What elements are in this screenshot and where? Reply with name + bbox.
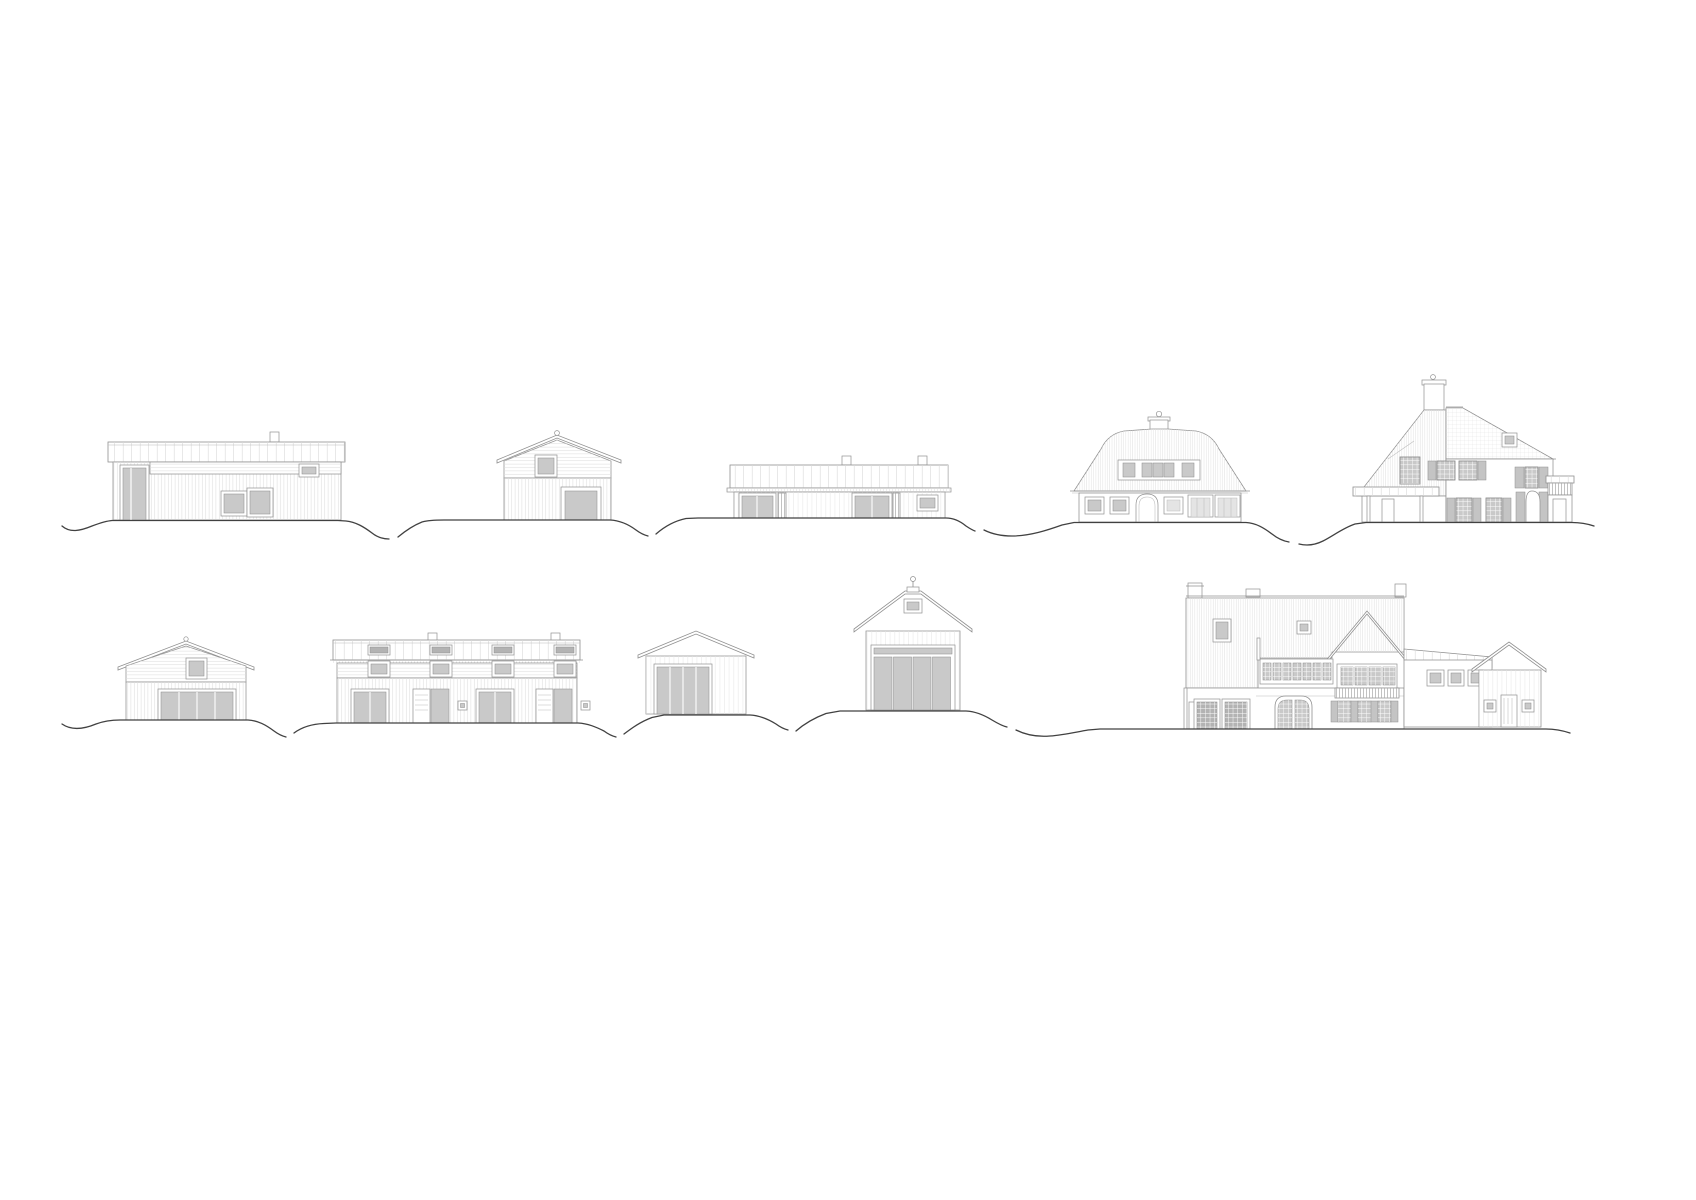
elevation-large-country-house [1184,583,1546,729]
glazed-opening [739,493,776,518]
unit-entrance [536,689,572,723]
chimney-ball [1156,411,1161,416]
shuttered-window-band [1331,701,1398,722]
roof-vent [842,456,851,465]
elevation-mansard-roof-house [1070,411,1250,522]
roof-dormer [904,599,922,613]
attic-window [1502,433,1517,447]
elevation-hip-roof-pavilion [854,577,972,711]
porch-door [1382,499,1394,522]
unit-entrance [351,689,389,723]
glazed-doors [1194,699,1250,729]
window [1110,497,1129,514]
side-balcony [1546,476,1574,522]
garage-door [654,664,712,714]
glazed-door-wall [871,645,955,710]
chimney-ball [1431,375,1436,380]
window-group [221,488,273,517]
orangerie-window [1188,495,1213,517]
entry-door-glazed [120,465,149,520]
elevation-long-low-pavilion [727,456,951,518]
chimney [1395,584,1406,597]
glazed-opening [852,493,892,518]
shuttered-window [1515,467,1548,488]
ground-shuttered-windows [1447,498,1511,522]
roof-vent [918,456,927,465]
window [1085,497,1104,514]
ribbon-windows [1260,659,1333,684]
window [1164,497,1183,514]
sliding-glass-door [158,689,236,720]
elevation-small-gable-cabin [497,431,621,520]
gable-window [535,455,557,477]
elevation-sheet [0,0,1696,1200]
elevation-small-gable-barn [118,637,254,720]
tower-windows [1337,664,1397,688]
stair-window [1400,457,1420,484]
loft-window [186,658,207,679]
small-window [917,495,938,511]
elevation-steep-roof-villa [1353,375,1574,522]
wing-windows [1427,670,1483,686]
annex-window [1484,700,1496,712]
ridge-finial [555,431,560,436]
ridge-finial [184,637,188,641]
annex-window [1522,700,1534,712]
porch-post [1367,496,1370,522]
chimney [1424,384,1444,410]
roof-skylight [1213,619,1231,642]
high-window [299,464,319,477]
unit-entrance [413,689,449,723]
porch-post [1420,496,1423,522]
arched-door [1136,494,1158,522]
elevation-garage [638,631,754,714]
annex-door [1501,695,1517,727]
roof-window [1297,621,1311,634]
roof-vent [270,432,279,442]
roof-cap [907,587,919,592]
downspout [1257,638,1260,660]
gable-roof [638,631,754,658]
porch-post [1184,688,1187,729]
unit-entrance [476,689,514,723]
roof-finial [911,577,916,582]
elevations-drawing [0,0,1696,1200]
balcony-railing [1335,688,1399,698]
arched-entry [1516,491,1548,522]
elevation-terraced-row-house [330,633,590,723]
wall [1362,496,1446,522]
orangerie-window [1215,495,1240,517]
elevation-flat-roof-outbuilding [108,432,345,520]
large-window [561,487,601,520]
roof-dormer-band [1118,460,1200,480]
side-door [1553,499,1566,522]
